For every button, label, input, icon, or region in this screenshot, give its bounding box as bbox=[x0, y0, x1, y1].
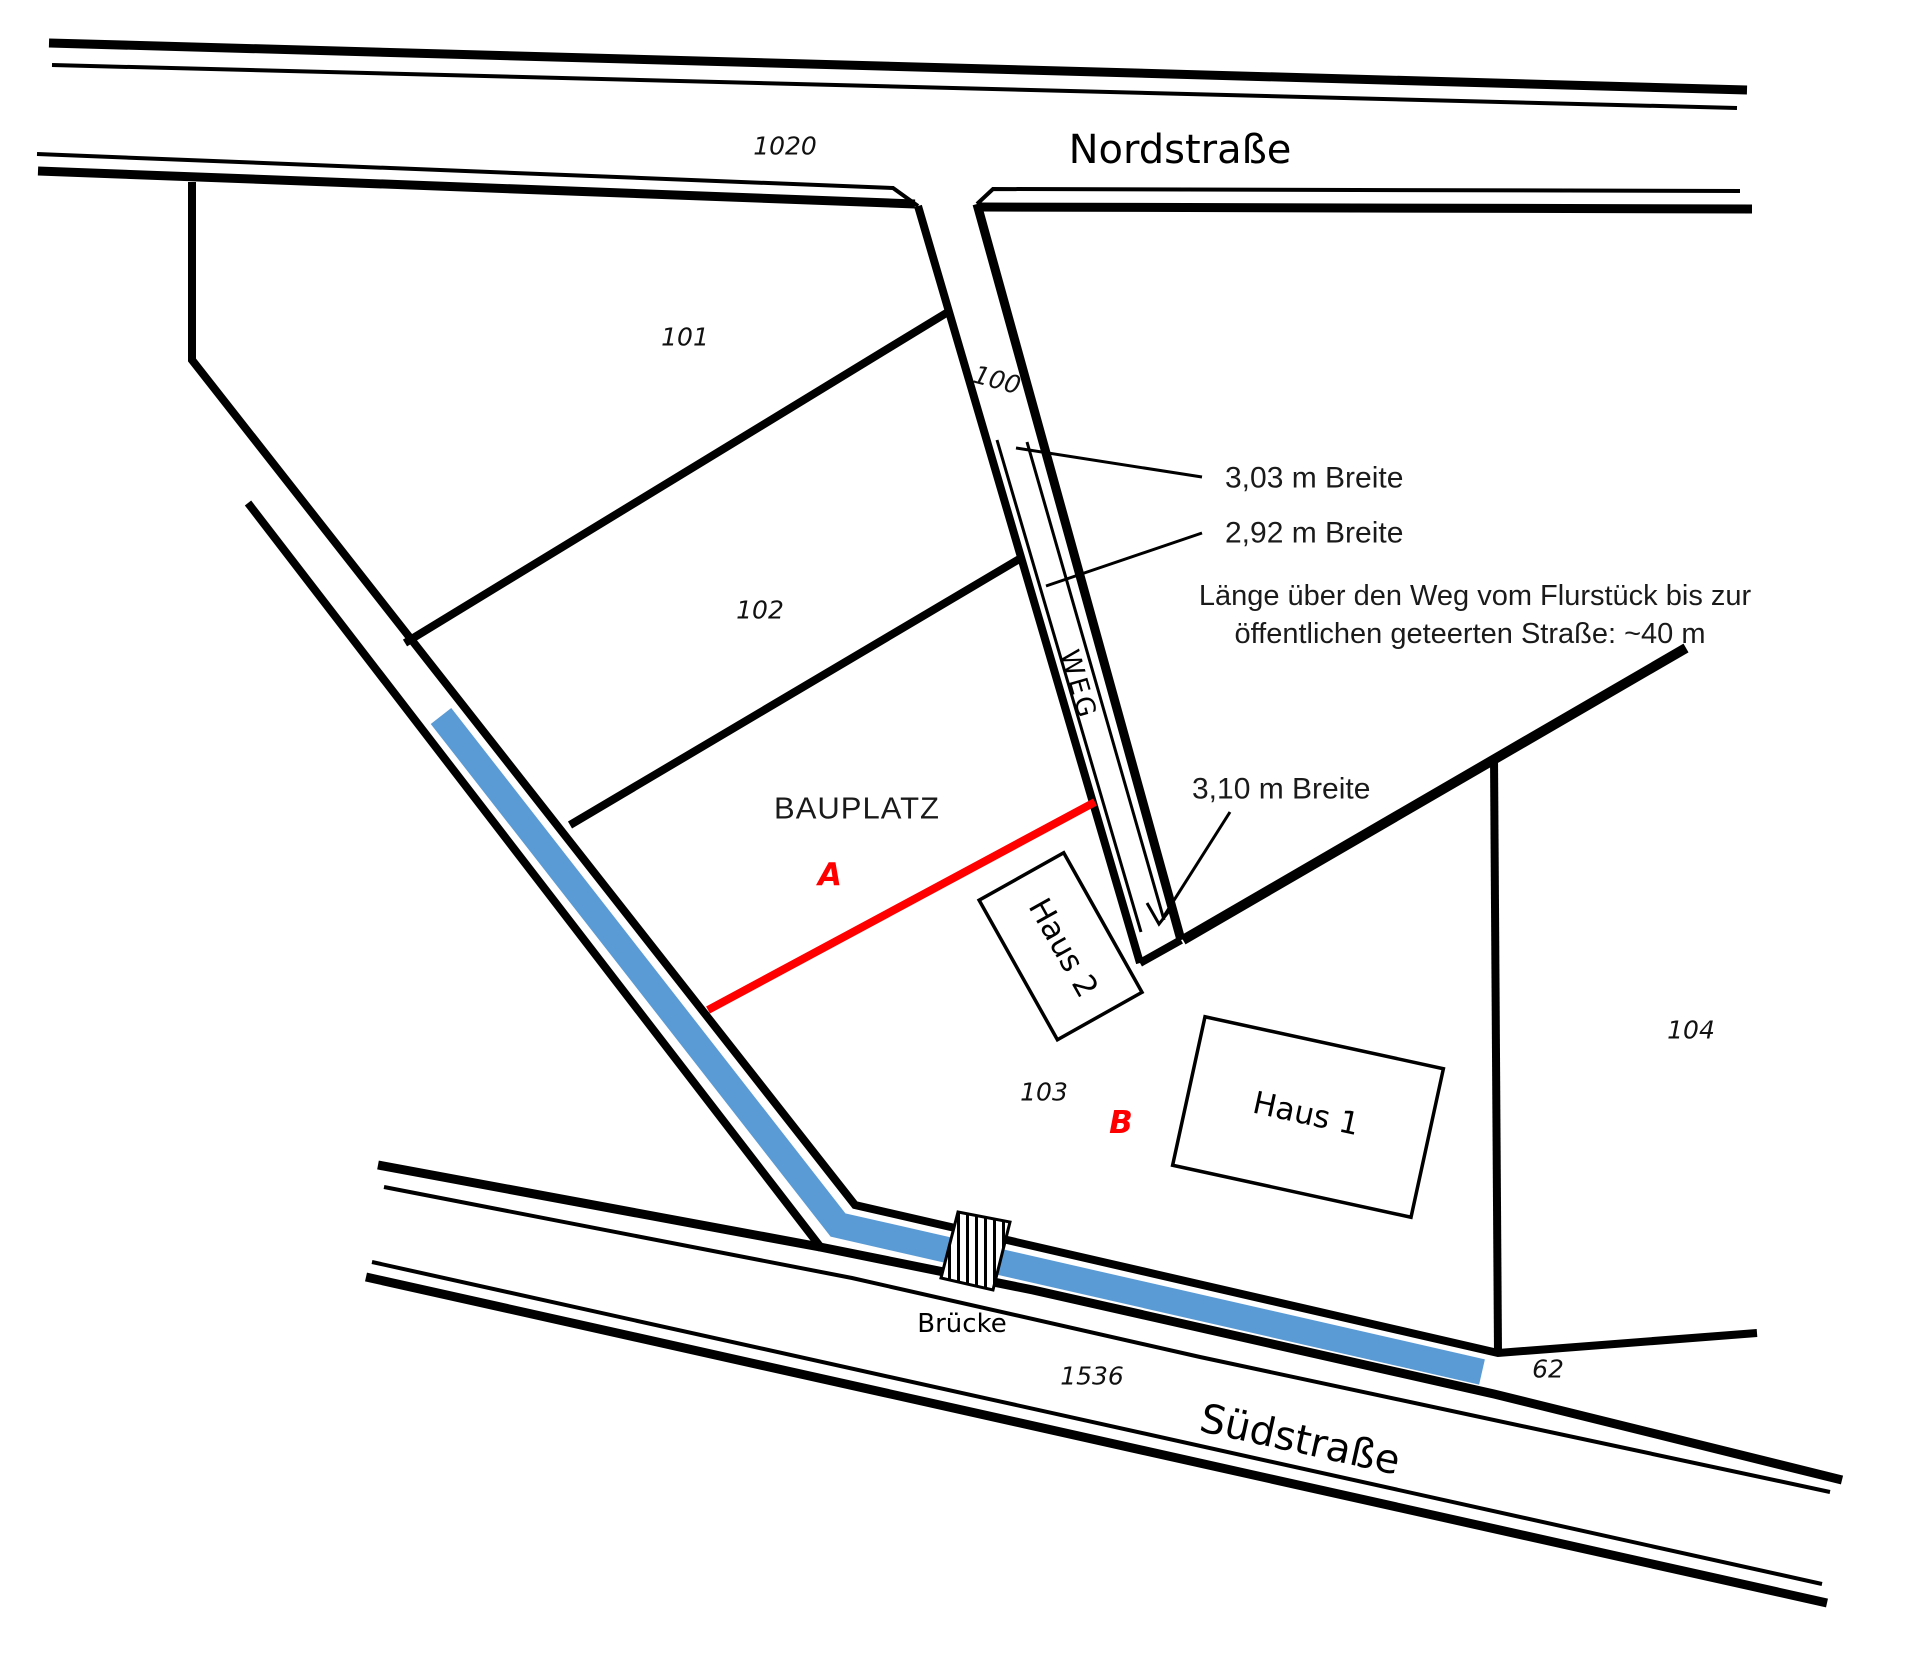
parcel-number-1020: 1020 bbox=[753, 132, 817, 161]
parcel-number-103: 103 bbox=[1020, 1078, 1068, 1107]
cadastral-site-plan: Nordstraße Südstraße 1020 1536 101 102 1… bbox=[0, 0, 1920, 1665]
parcel-number-62: 62 bbox=[1532, 1355, 1564, 1384]
parcel-number-102: 102 bbox=[736, 596, 784, 625]
paper-background bbox=[0, 0, 1920, 1665]
nordstrasse-label: Nordstraße bbox=[1069, 127, 1292, 173]
annotation-width-middle: 2,92 m Breite bbox=[1225, 517, 1403, 550]
bauplatz-label: BAUPLATZ bbox=[774, 791, 940, 826]
annotation-width-north: 3,03 m Breite bbox=[1225, 462, 1403, 495]
zone-b-label: B bbox=[1109, 1105, 1133, 1141]
annotation-length-line2: öffentlichen geteerten Straße: ~40 m bbox=[1234, 618, 1705, 650]
annotation-width-south: 3,10 m Breite bbox=[1192, 773, 1370, 806]
parcel-number-101: 101 bbox=[661, 323, 709, 352]
parcel-number-1536: 1536 bbox=[1060, 1362, 1124, 1391]
nordstrasse-south-outer-line-east bbox=[978, 207, 1752, 209]
bruecke-label: Brücke bbox=[917, 1309, 1006, 1339]
zone-a-label: A bbox=[815, 857, 842, 893]
boundary-104-west bbox=[1494, 757, 1498, 1353]
annotation-length-line1: Länge über den Weg vom Flurstück bis zur bbox=[1199, 580, 1752, 612]
parcel-number-104: 104 bbox=[1667, 1016, 1715, 1045]
